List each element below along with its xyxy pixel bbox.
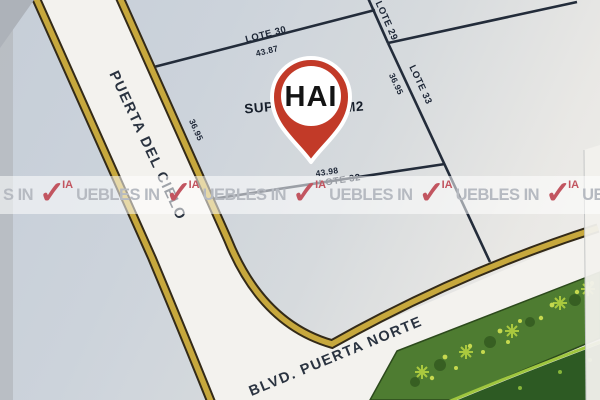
pin-label: HAI (285, 81, 338, 113)
watermark-unit: ✓IAUEBLES IN (292, 180, 413, 211)
watermark-ia-text: IA (189, 179, 200, 191)
watermark-unit: ✓IAUEBLES IN (39, 180, 160, 211)
watermark-ia-text: IA (62, 179, 73, 191)
watermark-unit: ✓IAUEBLES IN (419, 180, 540, 211)
watermark-text: UEBLES IN (203, 186, 287, 205)
watermark-ia-text: IA (568, 179, 579, 191)
watermark-text: S IN (3, 186, 33, 205)
watermark-unit: ✓IAUEBLES IN (545, 180, 600, 211)
watermark-text: UEBLES IN (329, 186, 413, 205)
plat-map-photo: LOTE 30 43.87 LOTE 29 36.95 LOTE 33 36.9… (0, 0, 600, 400)
watermark-ia-text: IA (442, 179, 453, 191)
watermark-unit: ✓IAUEBLES IN (166, 180, 287, 211)
watermark-text: UEBLES IN (76, 186, 160, 205)
watermark-band: S IN✓IAUEBLES IN✓IAUEBLES IN✓IAUEBLES IN… (0, 176, 600, 214)
watermark-text: UEBLES IN (582, 186, 600, 205)
watermark-ia-text: IA (315, 179, 326, 191)
location-pin-icon: HAI (272, 58, 350, 162)
watermark-text: UEBLES IN (456, 186, 540, 205)
